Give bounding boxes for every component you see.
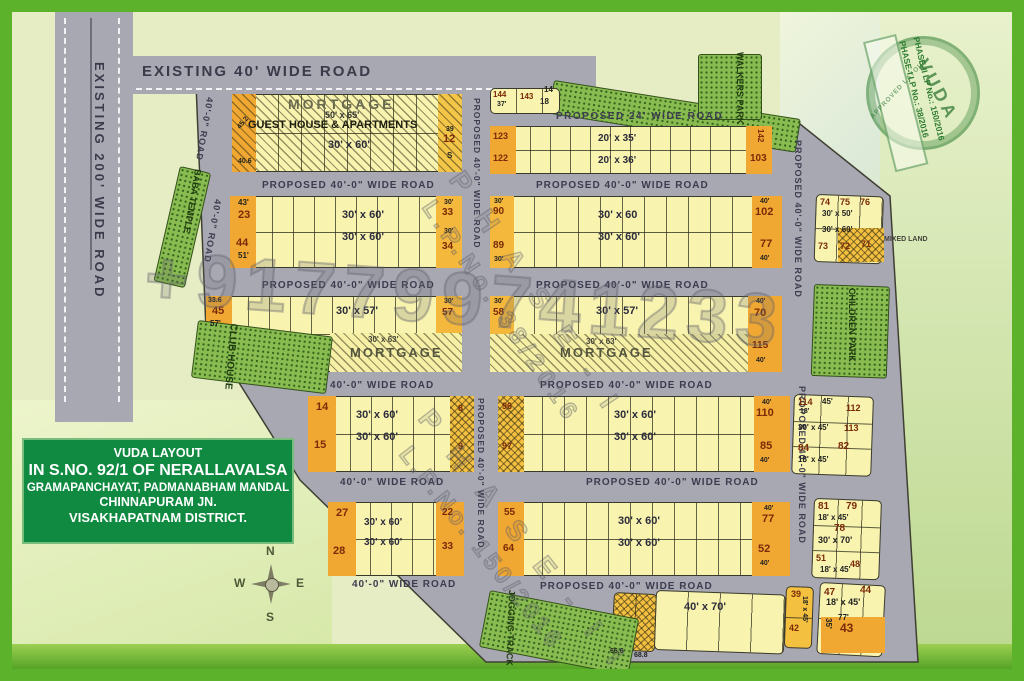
dim-r4l-30x60-b: 30' x 60': [356, 432, 398, 444]
plot-76: 76: [860, 198, 870, 207]
plot-122: 122: [493, 154, 508, 163]
dim-30x70: 30' x 70': [818, 536, 852, 545]
compass-hub-icon: [265, 578, 279, 592]
compass-south: S: [266, 610, 274, 624]
plot-112: 112: [846, 404, 861, 413]
label-vroad-right-top: PROPOSED 40'-0" WIDE ROAD: [793, 140, 802, 298]
plot-33b: 33: [442, 542, 453, 553]
dim-81-18x45: 18' x 45': [818, 514, 849, 522]
plot-39: 39: [791, 590, 801, 599]
dim-r5l-30x60-a: 30' x 60': [364, 518, 402, 529]
dim-77-40: 40': [760, 255, 769, 262]
plot-48: 48: [850, 560, 860, 569]
dim-r5l-30x60-b: 30' x 60': [364, 538, 402, 549]
dim-20x35: 20' x 35': [598, 134, 636, 145]
plot-142: 142: [756, 129, 764, 142]
plot-s: S: [447, 152, 452, 160]
dim-77b-40: 40': [764, 505, 773, 512]
dim-r4l-30x60-a: 30' x 60': [356, 410, 398, 422]
map-elements: EXISTING 40' WIDE ROADEXISTING 200' WIDE…: [0, 0, 1024, 681]
info-district-line: VISAKHAPATNAM DISTRICT.: [24, 510, 292, 525]
dim-37: 37': [497, 101, 506, 108]
dim-r2r-30x60-b: 30' x 60': [598, 232, 640, 244]
dim-r4r-30x60-a: 30' x 60': [614, 410, 656, 422]
dim-r2l-30x60-b: 30' x 60': [342, 232, 384, 244]
plot-77a: 77: [760, 239, 772, 251]
plot-73: 73: [818, 242, 828, 251]
plot-15: 15: [314, 440, 326, 452]
label-walkers-park: WALKERS PARK: [735, 52, 744, 124]
dim-114-18: 18': [800, 408, 809, 415]
dim-52-40: 40': [760, 560, 769, 567]
dim-gh-30x60: 30' x 60': [328, 140, 370, 152]
vuda-layout-map: EXISTING 40' WIDE ROADEXISTING 200' WIDE…: [0, 0, 1024, 681]
label-r1-left: PROPOSED 40'-0" WIDE ROAD: [262, 181, 435, 192]
plot-43: 43: [840, 622, 853, 635]
dim-47-18x45: 18' x 45': [826, 598, 860, 607]
plot-82: 82: [838, 442, 849, 453]
label-guest-house: GUEST HOUSE & APARTMENTS: [248, 120, 417, 132]
label-r4-right: PROPOSED 40'-0" WIDE ROAD: [586, 478, 759, 489]
dim-84-18x45: 18' x 45': [798, 456, 829, 464]
plot-114: 114: [798, 398, 813, 407]
plot-12: 12: [443, 134, 455, 146]
label-r5-left: 40'-0" WIDE ROAD: [352, 580, 456, 591]
plot-79: 79: [846, 502, 857, 513]
lane-dash-200-left: [64, 18, 66, 402]
plot-85: 85: [760, 441, 772, 453]
plot-14: 14: [316, 402, 328, 414]
plot-110: 110: [756, 408, 774, 420]
dim-85-40: 40': [760, 457, 769, 464]
dim-r2r-30x60-a: 30' x 60: [598, 210, 637, 222]
plot-77b: 77: [762, 514, 774, 526]
plot-51: 51: [816, 554, 826, 563]
label-children-park: CHILDREN PARK: [847, 288, 856, 362]
plot-123: 123: [493, 132, 508, 141]
plot-102: 102: [755, 207, 773, 219]
dim-35ft: 35': [824, 618, 832, 629]
plot-97: 97: [502, 442, 512, 451]
dim-45ft: 45': [822, 398, 833, 406]
plot-44b: 44: [860, 586, 871, 597]
plot-144: 144: [493, 91, 506, 99]
plot-75: 75: [840, 198, 850, 207]
plot-84: 84: [798, 444, 809, 455]
plot-52: 52: [758, 544, 770, 556]
dim-20x36: 20' x 36': [598, 156, 636, 167]
dim-30x50: 30' x 50': [822, 210, 853, 218]
plot-103: 103: [750, 154, 767, 165]
compass-east: E: [296, 576, 304, 590]
info-panchayat-line: GRAMAPANCHAYAT, PADMANABHAM MANDAL: [24, 482, 292, 494]
info-title: VUDA LAYOUT: [24, 446, 292, 460]
label-existing-40: EXISTING 40' WIDE ROAD: [142, 64, 372, 80]
dim-30x45: 30' x 45': [798, 424, 829, 432]
plot-78: 78: [834, 524, 845, 535]
label-mortgage-left: MORTGAGE: [350, 346, 443, 360]
plot-74: 74: [820, 198, 830, 207]
layout-info-box: VUDA LAYOUT IN S.NO. 92/1 OF NERALLAVALS…: [22, 438, 294, 544]
info-junction-line: CHINNAPURAM JN.: [24, 495, 292, 509]
compass-rose: N W E S: [238, 544, 308, 628]
label-existing-200: EXISTING 200' WIDE ROAD: [92, 62, 106, 300]
dim-51-18x45: 18' x 45': [820, 566, 851, 574]
dim-39-18x45: 18' x 45': [801, 596, 808, 623]
info-survey-line: IN S.NO. 92/1 OF NERALLAVALSA: [24, 462, 292, 480]
plot-42: 42: [789, 624, 799, 633]
lane-dash-200-right: [118, 18, 120, 402]
dim-40x70: 40' x 70': [684, 602, 726, 614]
dim-r2l-30x60-a: 30' x 60': [342, 210, 384, 222]
label-left-road-1: 40'-0" ROAD: [194, 96, 214, 161]
plot-8: 8: [458, 404, 463, 413]
dim-18: 18: [540, 98, 549, 106]
dim-r5r-30x60-b: 30' x 60': [618, 538, 660, 550]
dim-r4r-30x60-b: 30' x 60': [614, 432, 656, 444]
compass-west: W: [234, 576, 245, 590]
plot-72: 72: [840, 242, 850, 251]
label-road24: PROPOSED 24' WIDE ROAD: [556, 112, 723, 123]
label-r1-right: PROPOSED 40'-0" WIDE ROAD: [536, 181, 709, 192]
dim-30x60-76: 30' x 60': [822, 226, 853, 234]
plot-143: 143: [520, 93, 533, 101]
label-r3-left: 40'-0" WIDE ROAD: [330, 381, 434, 392]
compass-north: N: [266, 544, 275, 558]
dim-102-40: 40': [760, 198, 769, 205]
dim-r5r-30x60-a: 30' x 60': [618, 516, 660, 528]
dim-30x63-l: 30' x 63': [368, 336, 399, 344]
label-mixed-land: MIXED LAND: [884, 236, 928, 243]
plot-23: 23: [238, 210, 250, 222]
dim-688: 68.8: [634, 652, 648, 659]
plot-96: 96: [502, 402, 512, 411]
plot-27: 27: [336, 508, 348, 520]
plot-81: 81: [818, 502, 829, 513]
dim-43: 43': [238, 199, 249, 207]
plot-71: 71: [861, 240, 871, 249]
dim-406: 40.6: [238, 158, 252, 165]
dim-14: 14: [544, 86, 553, 94]
plot-28: 28: [333, 546, 345, 558]
plot-113: 113: [844, 424, 859, 433]
block-40x70: [654, 590, 786, 655]
dim-110-40: 40': [762, 399, 771, 406]
